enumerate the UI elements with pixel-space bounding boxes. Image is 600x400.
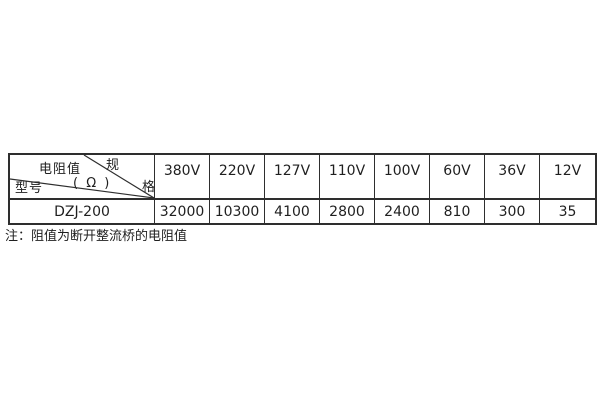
resistance-unit-label: ( Ω ) (73, 177, 111, 190)
resistance-value-cell: 4100 (265, 200, 320, 223)
voltage-header-cell: 12V (540, 155, 595, 200)
page: { "table": { "corner": { "spec_char_1": … (0, 0, 600, 400)
voltage-header-cell: 380V (155, 155, 210, 200)
resistance-value-cell: 2800 (320, 200, 375, 223)
spec-label-char2: 格 (142, 181, 155, 194)
voltage-header-cell: 60V (430, 155, 485, 200)
diagonal-header-cell: 规 格 电阻值 ( Ω ) 型号 (10, 155, 155, 200)
voltage-header-cell: 127V (265, 155, 320, 200)
resistance-value-cell: 2400 (375, 200, 430, 223)
resistance-value-cell: 300 (485, 200, 540, 223)
resistance-label: 电阻值 (39, 163, 81, 176)
header-row: 规 格 电阻值 ( Ω ) 型号 380V 220V 127V 110V 100… (10, 155, 595, 200)
voltage-header-cell: 110V (320, 155, 375, 200)
table-row: DZJ-200 32000 10300 4100 2800 2400 810 3… (10, 200, 595, 223)
model-axis-label: 型号 (15, 182, 43, 195)
spec-table: 规 格 电阻值 ( Ω ) 型号 380V 220V 127V 110V 100… (8, 153, 597, 225)
resistance-value-cell: 10300 (210, 200, 265, 223)
footnote: 注：阻值为断开整流桥的电阻值 (5, 229, 187, 245)
resistance-value-cell: 32000 (155, 200, 210, 223)
resistance-value-cell: 35 (540, 200, 595, 223)
resistance-value-cell: 810 (430, 200, 485, 223)
voltage-header-cell: 36V (485, 155, 540, 200)
spec-label-char1: 规 (106, 159, 119, 172)
voltage-header-cell: 100V (375, 155, 430, 200)
voltage-header-cell: 220V (210, 155, 265, 200)
model-name-cell: DZJ-200 (10, 200, 155, 223)
